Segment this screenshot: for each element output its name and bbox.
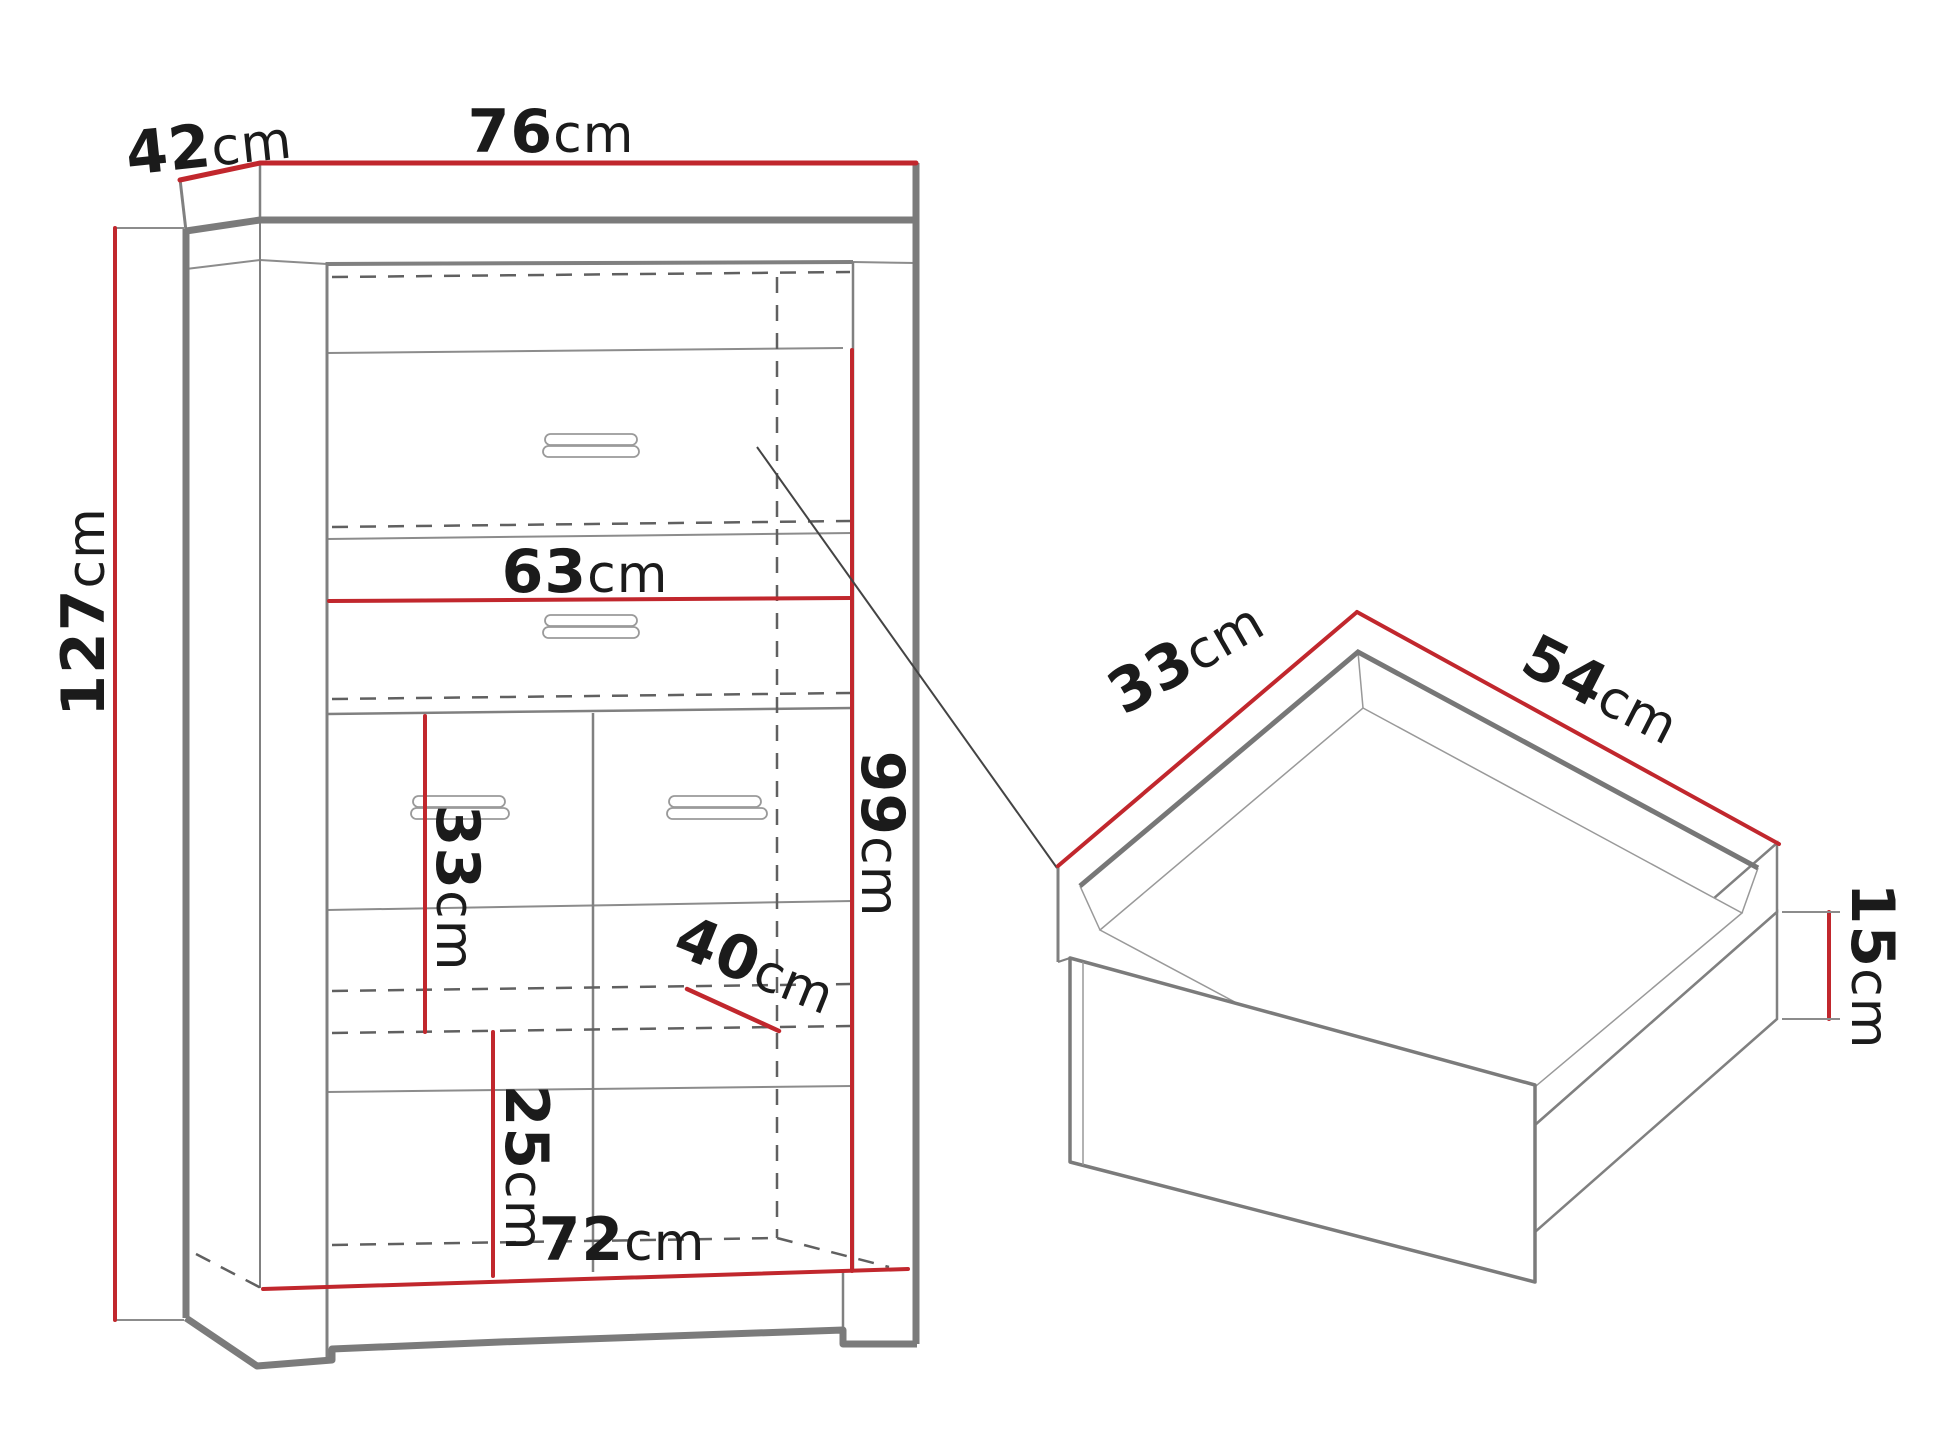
door-handle-icon bbox=[667, 796, 767, 819]
interior-height-99-label: 99cm bbox=[847, 751, 917, 918]
drawer-width-63-label: 63cm bbox=[502, 537, 669, 607]
dimension-diagram: 42cm 76cm 127cm 63cm 99cm 33cm 40cm 25cm… bbox=[0, 0, 1940, 1455]
height-127-label: 127cm bbox=[49, 507, 119, 717]
drawer-height-15-label: 15cm bbox=[1837, 883, 1907, 1050]
inner-panel-top-edge bbox=[327, 262, 853, 264]
top-rail-underside-right bbox=[853, 262, 916, 263]
interior-width-72-label: 72cm bbox=[539, 1205, 706, 1275]
drawer-handle-icon bbox=[543, 434, 639, 457]
drawer-handle-icon bbox=[543, 615, 639, 638]
width-76-label: 76cm bbox=[468, 97, 635, 167]
shelf-spacing-33-label: 33cm bbox=[422, 805, 492, 972]
diagram-canvas: 42cm 76cm 127cm 63cm 99cm 33cm 40cm 25cm… bbox=[0, 0, 1940, 1455]
